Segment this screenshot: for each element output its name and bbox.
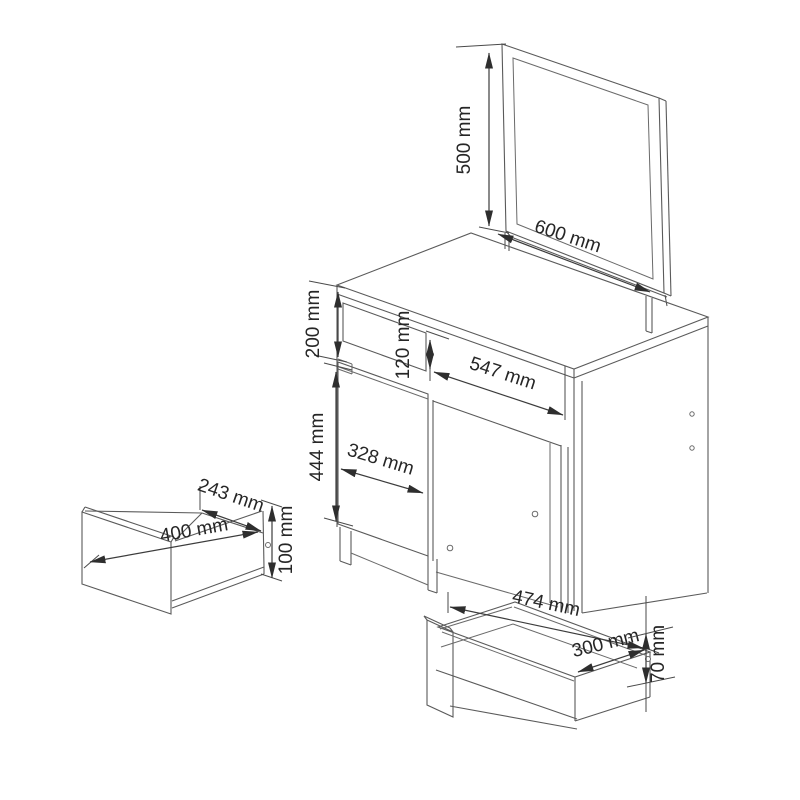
furniture-dimension-diagram: 500 mm 600 mm <box>0 0 800 800</box>
dim-bottom-drawer-width-label: 474 mm <box>510 586 582 621</box>
dim-top-section-height-label: 200 mm <box>303 290 324 359</box>
dim-door-height-label: 444 mm <box>307 413 328 482</box>
mirror-side-thickness <box>666 101 671 296</box>
cam-hole <box>266 543 271 548</box>
cam-hole <box>690 446 694 450</box>
cam-hole <box>532 511 538 517</box>
cam-hole <box>447 545 453 551</box>
dim-door-width: 328 mm <box>341 440 423 493</box>
dim-side-drawer-depth-label: 243 mm <box>195 475 267 517</box>
dim-side-drawer-height-label: 100 mm <box>276 506 297 575</box>
dim-kneehole-width-label: 547 mm <box>467 353 539 394</box>
dim-mirror-height-label: 500 mm <box>454 106 475 175</box>
dressing-table <box>337 233 708 613</box>
dim-side-drawer-height: 100 mm <box>261 500 297 581</box>
bottom-drawer <box>424 602 651 729</box>
diagram-canvas: 500 mm 600 mm <box>0 0 800 800</box>
mirror-outer-frame <box>502 44 664 293</box>
dim-drawer-front-height-label: 120 mm <box>393 311 414 380</box>
dim-side-drawer-width-label: 400 mm <box>158 514 229 547</box>
cam-hole <box>690 412 694 416</box>
dim-door-height: 444 mm <box>307 363 353 526</box>
dim-top-section-height: 200 mm <box>303 281 347 362</box>
dim-bottom-drawer-height-label: 70 mm <box>648 625 669 683</box>
desk-legs <box>340 527 437 593</box>
desk-right-side-panel <box>574 326 708 613</box>
dim-kneehole-width: 547 mm <box>430 353 565 420</box>
mirror <box>502 44 671 333</box>
dim-mirror-height: 500 mm <box>454 44 509 233</box>
desk-kneehole <box>433 400 568 613</box>
